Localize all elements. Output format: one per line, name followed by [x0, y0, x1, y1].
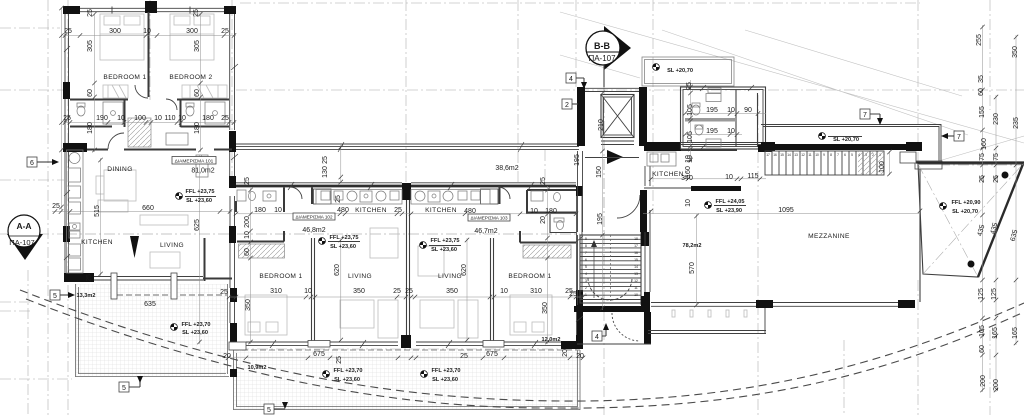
svg-text:195: 195	[706, 107, 718, 114]
svg-text:ΔIAMEPIΣMA 101: ΔIAMEPIΣMA 101	[175, 158, 214, 164]
svg-text:12: 12	[801, 153, 805, 157]
svg-text:10: 10	[304, 288, 312, 295]
svg-text:130: 130	[322, 166, 329, 178]
svg-text:25: 25	[52, 203, 60, 210]
svg-text:25: 25	[335, 195, 342, 203]
svg-text:10: 10	[685, 199, 692, 207]
svg-text:13,3m2: 13,3m2	[77, 293, 96, 299]
svg-text:10: 10	[727, 128, 735, 135]
svg-text:25: 25	[86, 274, 93, 282]
svg-text:KITCHEN: KITCHEN	[81, 239, 113, 246]
svg-text:78,2m2: 78,2m2	[683, 243, 702, 249]
svg-text:46,7m2: 46,7m2	[474, 228, 497, 235]
svg-text:200: 200	[993, 379, 1000, 391]
svg-text:3: 3	[865, 153, 867, 157]
svg-text:25: 25	[64, 28, 72, 35]
svg-text:SL +23,60: SL +23,60	[182, 330, 208, 336]
svg-text:350: 350	[542, 302, 549, 314]
svg-text:60: 60	[978, 88, 985, 96]
svg-text:17: 17	[634, 244, 638, 248]
svg-text:B-B: B-B	[594, 41, 610, 51]
svg-text:125: 125	[991, 288, 998, 300]
svg-text:SL +23,60: SL +23,60	[431, 247, 457, 253]
svg-text:14: 14	[634, 265, 638, 269]
svg-text:90: 90	[744, 107, 752, 114]
svg-text:515: 515	[94, 205, 101, 217]
svg-text:MEZZANINE: MEZZANINE	[808, 233, 850, 240]
svg-text:25: 25	[63, 115, 71, 122]
svg-text:4: 4	[595, 334, 599, 341]
svg-text:12: 12	[634, 279, 638, 283]
svg-text:1: 1	[879, 153, 881, 157]
svg-text:18: 18	[634, 237, 638, 241]
svg-text:2: 2	[565, 102, 569, 109]
svg-text:350: 350	[446, 288, 458, 295]
svg-text:25: 25	[993, 175, 1000, 183]
svg-text:5: 5	[122, 385, 126, 392]
svg-text:7: 7	[957, 134, 961, 141]
svg-text:25: 25	[540, 177, 547, 185]
svg-text:SL +20,70: SL +20,70	[952, 209, 978, 215]
svg-text:10: 10	[685, 155, 692, 163]
svg-text:FFL +23,70: FFL +23,70	[432, 368, 461, 374]
svg-text:105: 105	[979, 325, 986, 337]
svg-text:SL +23,60: SL +23,60	[330, 244, 356, 250]
svg-text:BEDROOM 1: BEDROOM 1	[508, 273, 551, 280]
svg-text:25: 25	[405, 288, 413, 295]
svg-text:10: 10	[500, 288, 508, 295]
svg-text:17: 17	[766, 153, 770, 157]
svg-text:300: 300	[109, 28, 121, 35]
svg-text:180: 180	[254, 207, 266, 214]
svg-text:160: 160	[981, 138, 988, 150]
svg-text:10: 10	[117, 115, 125, 122]
svg-text:305: 305	[87, 40, 94, 52]
svg-text:LIVING: LIVING	[438, 273, 462, 280]
svg-text:1: 1	[585, 293, 587, 297]
svg-text:LIVING: LIVING	[348, 273, 372, 280]
svg-text:SL +20,70: SL +20,70	[667, 68, 693, 74]
svg-text:10: 10	[178, 115, 186, 122]
svg-text:7: 7	[863, 112, 867, 119]
svg-text:A-A: A-A	[16, 221, 31, 231]
svg-text:155: 155	[979, 106, 986, 118]
svg-text:570: 570	[689, 262, 696, 274]
svg-text:675: 675	[486, 351, 498, 358]
svg-text:25: 25	[686, 82, 693, 90]
svg-text:ΠA-107: ΠA-107	[588, 54, 616, 63]
svg-text:DINING: DINING	[107, 166, 132, 173]
svg-text:7: 7	[837, 153, 839, 157]
svg-text:FFL +23,70: FFL +23,70	[334, 368, 363, 374]
svg-text:SL +23,60: SL +23,60	[334, 377, 360, 383]
svg-text:BEDROOM 1: BEDROOM 1	[259, 273, 302, 280]
svg-text:FFL +23,75: FFL +23,75	[431, 238, 460, 244]
svg-text:310: 310	[270, 288, 282, 295]
svg-text:305: 305	[194, 40, 201, 52]
svg-text:625: 625	[194, 219, 201, 231]
svg-text:2: 2	[585, 286, 587, 290]
svg-text:11: 11	[634, 286, 638, 290]
svg-text:KITCHEN: KITCHEN	[355, 207, 387, 214]
svg-text:350: 350	[245, 299, 252, 311]
svg-text:480: 480	[337, 207, 349, 214]
svg-text:SL +20,70: SL +20,70	[833, 137, 859, 143]
svg-text:10: 10	[154, 115, 162, 122]
svg-text:60: 60	[979, 345, 986, 353]
svg-text:FFL +23,75: FFL +23,75	[186, 189, 215, 195]
svg-text:160: 160	[685, 166, 692, 178]
svg-text:115: 115	[747, 173, 758, 180]
svg-text:150: 150	[596, 166, 603, 178]
svg-text:ΔIAMEPIΣMA 102: ΔIAMEPIΣMA 102	[295, 215, 333, 220]
svg-text:ΠA-107: ΠA-107	[9, 238, 34, 247]
svg-text:60: 60	[194, 89, 201, 97]
svg-text:620: 620	[461, 264, 468, 276]
svg-text:81,0m2: 81,0m2	[191, 168, 214, 175]
svg-text:25: 25	[979, 175, 986, 183]
svg-text:16: 16	[634, 251, 638, 255]
svg-text:105: 105	[687, 131, 694, 143]
svg-text:210: 210	[598, 119, 605, 131]
svg-text:25: 25	[336, 356, 343, 364]
svg-text:38,6m2: 38,6m2	[495, 165, 518, 172]
svg-text:310: 310	[530, 288, 542, 295]
svg-text:200: 200	[244, 216, 251, 228]
svg-text:10: 10	[530, 208, 538, 215]
svg-text:110: 110	[164, 115, 175, 122]
svg-text:620: 620	[334, 264, 341, 276]
svg-text:6: 6	[30, 160, 34, 167]
svg-text:25: 25	[244, 177, 251, 185]
svg-text:195: 195	[706, 128, 718, 135]
svg-text:6: 6	[844, 153, 846, 157]
svg-text:350: 350	[1012, 46, 1019, 58]
svg-text:FFL +23,70: FFL +23,70	[182, 322, 211, 328]
svg-text:BEDROOM 1: BEDROOM 1	[103, 74, 146, 81]
svg-text:FFL +20,90: FFL +20,90	[952, 200, 981, 206]
svg-text:BEDROOM 2: BEDROOM 2	[169, 74, 212, 81]
svg-text:255: 255	[976, 34, 983, 46]
svg-text:13: 13	[794, 153, 798, 157]
svg-text:20: 20	[540, 216, 547, 224]
svg-text:350: 350	[353, 288, 365, 295]
svg-text:20: 20	[576, 353, 584, 360]
svg-text:180: 180	[545, 208, 557, 215]
svg-text:SL +23,60: SL +23,60	[186, 198, 212, 204]
svg-text:100: 100	[134, 115, 146, 122]
svg-text:10: 10	[274, 207, 282, 214]
svg-text:16: 16	[773, 153, 777, 157]
svg-text:190: 190	[96, 115, 108, 122]
svg-text:635: 635	[144, 301, 156, 308]
svg-text:7: 7	[585, 251, 587, 255]
svg-text:LIVING: LIVING	[160, 242, 184, 249]
svg-text:25: 25	[322, 156, 329, 164]
svg-text:25: 25	[394, 207, 402, 214]
svg-text:25: 25	[220, 289, 228, 296]
svg-text:165: 165	[992, 327, 999, 339]
svg-text:10: 10	[815, 153, 819, 157]
svg-text:8: 8	[830, 153, 832, 157]
svg-text:105: 105	[687, 104, 694, 116]
svg-text:25: 25	[393, 288, 401, 295]
svg-text:25: 25	[193, 9, 200, 17]
svg-text:2: 2	[872, 153, 874, 157]
svg-text:165: 165	[1012, 327, 1019, 339]
svg-text:235: 235	[1013, 117, 1020, 129]
svg-text:FFL +23,75: FFL +23,75	[330, 235, 359, 241]
svg-text:4: 4	[858, 153, 860, 157]
svg-text:195: 195	[574, 154, 581, 166]
svg-text:12,0m2: 12,0m2	[542, 337, 561, 343]
svg-text:25: 25	[87, 9, 94, 17]
svg-text:10: 10	[143, 28, 151, 35]
svg-text:ΔIAMEPIΣMA 103: ΔIAMEPIΣMA 103	[470, 216, 508, 221]
svg-text:5: 5	[851, 153, 853, 157]
svg-text:300: 300	[186, 28, 198, 35]
svg-text:KITCHEN: KITCHEN	[425, 207, 457, 214]
svg-text:9: 9	[823, 153, 825, 157]
svg-text:180: 180	[202, 115, 214, 122]
svg-text:4: 4	[585, 272, 587, 276]
svg-text:60: 60	[244, 248, 251, 256]
svg-text:200: 200	[980, 375, 987, 387]
svg-text:10: 10	[244, 231, 251, 239]
svg-text:9: 9	[585, 237, 587, 241]
svg-text:10: 10	[634, 293, 638, 297]
svg-text:25: 25	[221, 28, 229, 35]
svg-text:3: 3	[585, 279, 587, 283]
svg-text:14: 14	[787, 153, 791, 157]
svg-text:6: 6	[585, 258, 587, 262]
svg-text:KITCHEN: KITCHEN	[652, 171, 684, 178]
svg-text:10: 10	[727, 107, 735, 114]
svg-text:4: 4	[569, 76, 573, 83]
svg-text:20: 20	[223, 353, 231, 360]
svg-text:25: 25	[221, 115, 229, 122]
svg-text:75: 75	[993, 153, 1000, 161]
svg-text:13: 13	[634, 272, 638, 276]
svg-text:675: 675	[313, 351, 325, 358]
svg-text:1095: 1095	[778, 207, 794, 214]
svg-text:10: 10	[725, 174, 733, 181]
svg-text:15: 15	[634, 258, 638, 262]
svg-text:11: 11	[808, 153, 812, 157]
svg-text:230: 230	[993, 113, 1000, 125]
svg-text:15: 15	[780, 153, 784, 157]
svg-text:195: 195	[597, 213, 604, 225]
svg-text:75: 75	[979, 153, 986, 161]
svg-text:10,9m2: 10,9m2	[248, 365, 267, 371]
svg-text:60: 60	[87, 89, 94, 97]
svg-text:20: 20	[562, 349, 569, 357]
svg-text:FFL +24,05: FFL +24,05	[716, 199, 745, 205]
svg-text:5: 5	[585, 265, 587, 269]
svg-text:180: 180	[87, 122, 94, 134]
svg-text:SL +23,60: SL +23,60	[432, 377, 458, 383]
svg-text:25: 25	[460, 353, 468, 360]
svg-text:25: 25	[569, 291, 577, 298]
svg-text:100: 100	[879, 161, 886, 173]
svg-text:180: 180	[194, 122, 201, 134]
svg-text:SL +23,90: SL +23,90	[716, 208, 742, 214]
svg-text:35: 35	[978, 75, 985, 83]
svg-text:660: 660	[142, 205, 154, 212]
svg-text:8: 8	[585, 244, 587, 248]
svg-text:46,8m2: 46,8m2	[302, 227, 325, 234]
svg-text:125: 125	[978, 288, 985, 300]
svg-text:5: 5	[53, 293, 57, 300]
svg-text:5: 5	[267, 407, 271, 414]
